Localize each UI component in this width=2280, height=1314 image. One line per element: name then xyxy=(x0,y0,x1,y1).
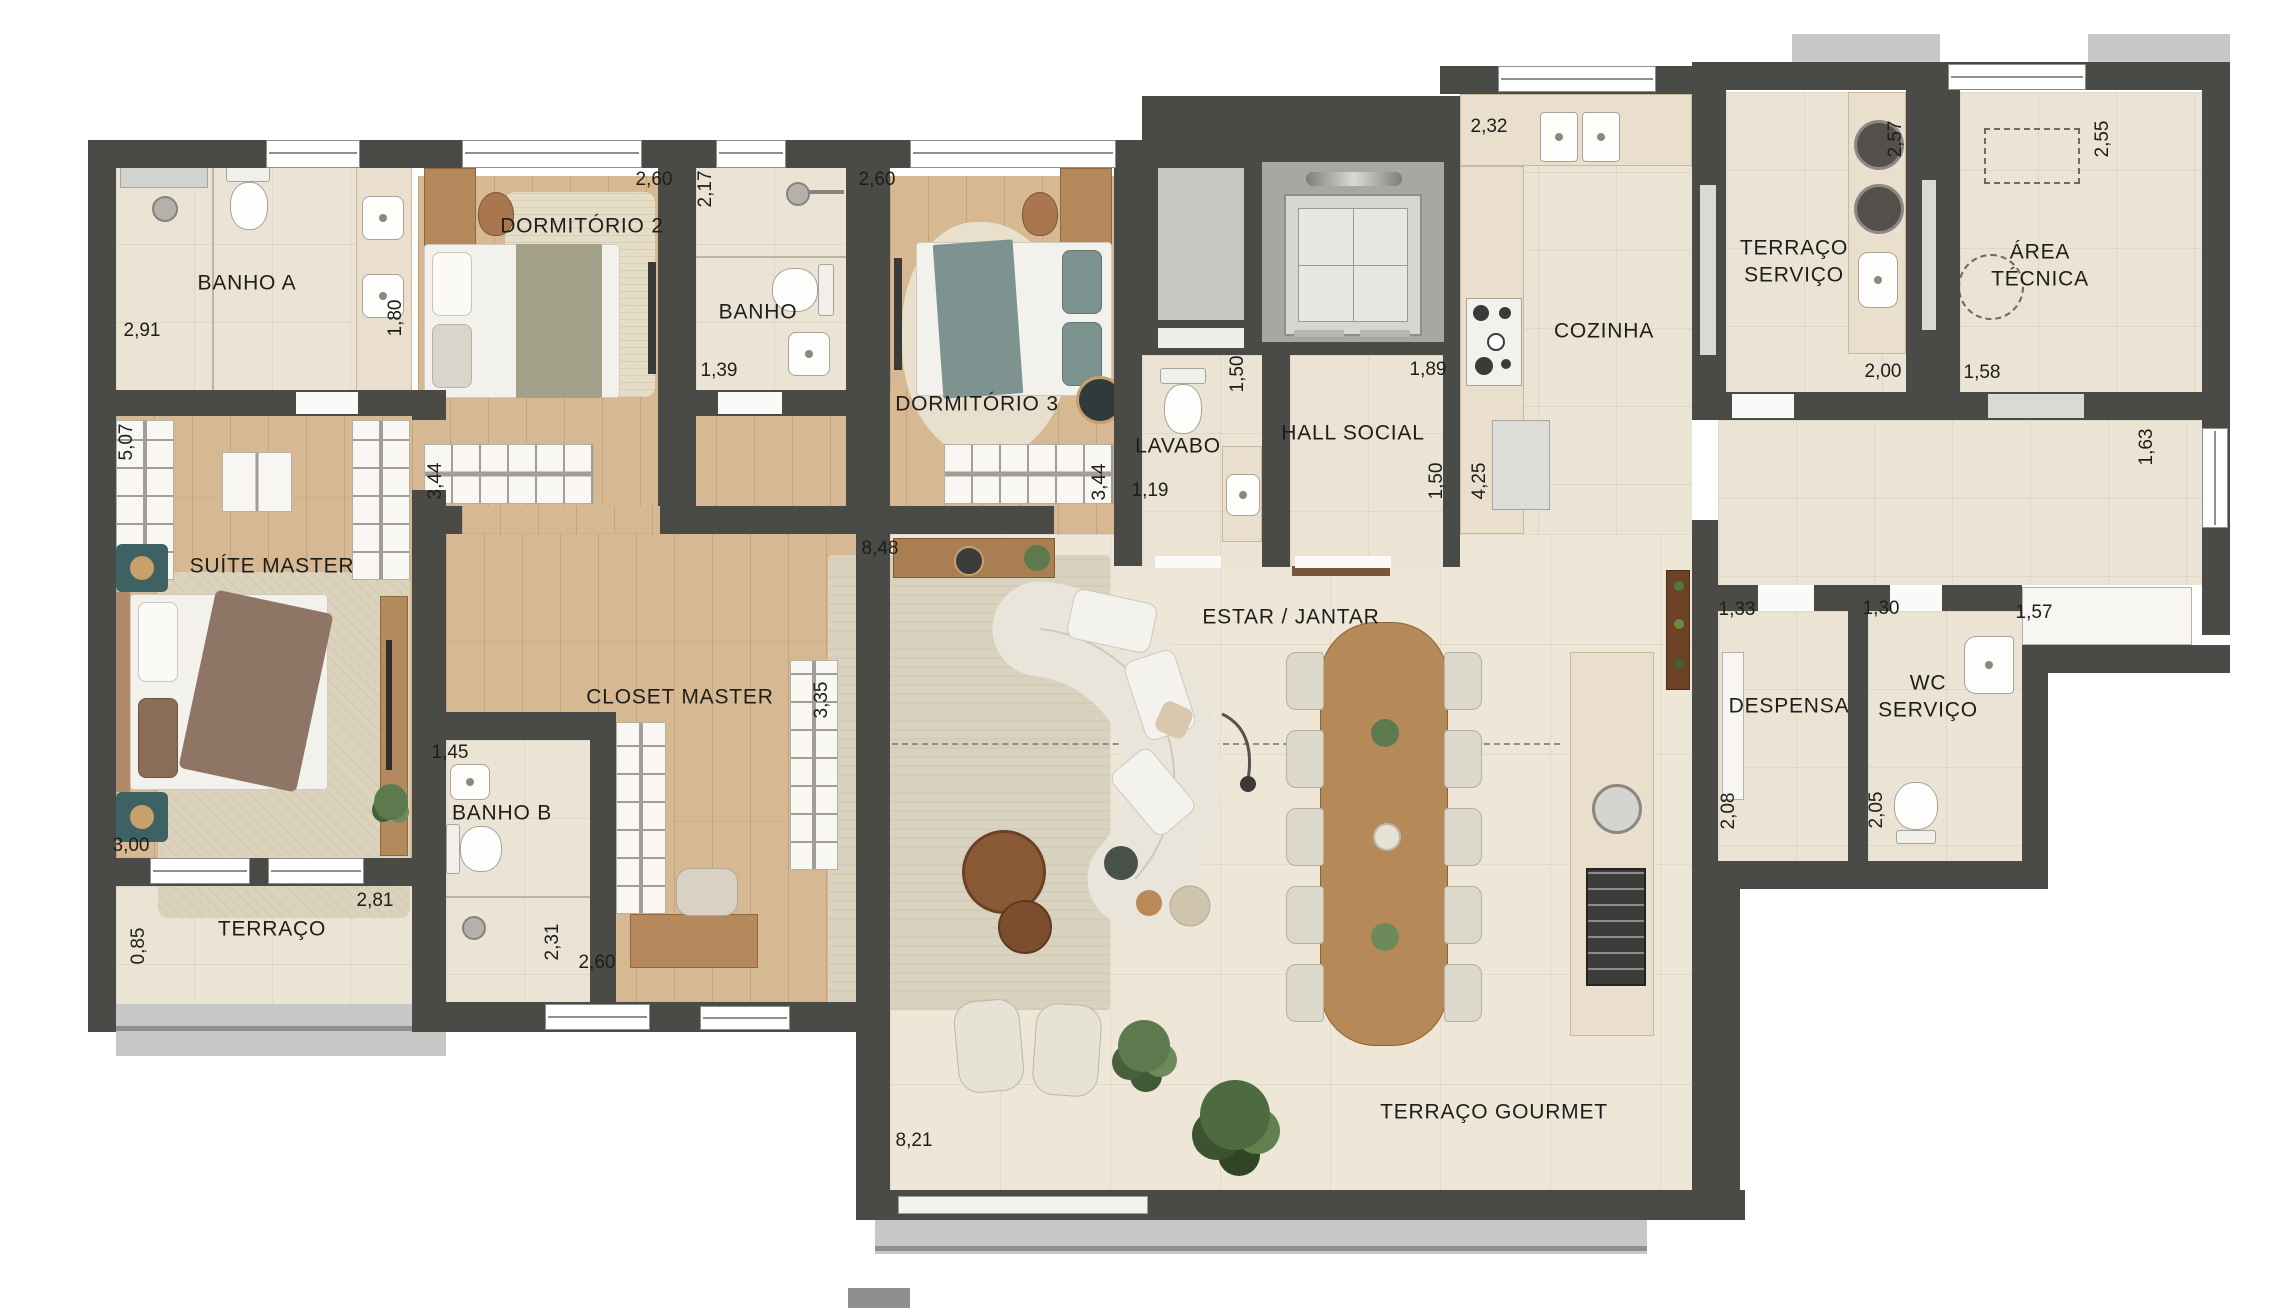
room-label-despensa: DESPENSA xyxy=(1729,692,1850,719)
centerpiece xyxy=(1373,823,1401,851)
burner xyxy=(1475,357,1493,375)
toilet-icon xyxy=(460,826,502,872)
floor-lamp-arm xyxy=(1222,714,1250,780)
window-dorm3 xyxy=(910,140,1116,168)
dorm2-blanket xyxy=(516,244,602,398)
dim-wc-width: 1,30 xyxy=(1863,598,1900,620)
washer-icon xyxy=(1854,184,1904,234)
room-label-wc-servico: WC SERVIÇO xyxy=(1878,670,1978,725)
room-label-lavabo: LAVABO xyxy=(1135,432,1221,459)
shower-head-icon xyxy=(786,182,810,206)
dim-tecnica-width: 1,58 xyxy=(1964,362,2001,384)
grill-icon xyxy=(1586,868,1646,986)
suite-headboard xyxy=(116,592,130,792)
banho-a-door xyxy=(296,392,358,414)
window-banho xyxy=(716,140,786,168)
bottle xyxy=(1674,659,1684,669)
toilet-icon xyxy=(1894,782,1938,830)
dim-shelf: 1,57 xyxy=(2016,602,2053,624)
dim-banho-b-width: 1,45 xyxy=(432,742,469,764)
dim-banho-a-width: 2,91 xyxy=(124,320,161,342)
burner xyxy=(1499,307,1511,319)
wall-hall-cozinha xyxy=(1443,355,1460,567)
dim-terraco-width: 2,81 xyxy=(357,890,394,912)
kitchen-sink-icon xyxy=(1582,112,1620,162)
plant-icon xyxy=(1200,1080,1270,1150)
room-label-banho: BANHO xyxy=(719,298,798,325)
dim-hall-depth: 1,50 xyxy=(1426,463,1448,500)
hall-door-threshold xyxy=(1295,556,1391,568)
dim-lavabo-depth: 1,50 xyxy=(1227,356,1249,393)
wall-dorm3-right xyxy=(1114,142,1142,566)
elevator-sill xyxy=(1360,330,1410,337)
dorm3-pillow xyxy=(1062,250,1102,314)
dim-suite-wardrobe: 5,07 xyxy=(116,424,138,461)
toilet-icon xyxy=(1896,830,1936,844)
window-cozinha xyxy=(1498,66,1656,92)
sink-icon xyxy=(450,764,490,800)
dining-chair xyxy=(1286,652,1324,710)
dim-banho-a-depth: 1,80 xyxy=(385,300,407,337)
toilet-icon xyxy=(1164,384,1202,434)
wall-suite-divider xyxy=(412,490,446,858)
dim-dorm2-wardrobe: 3,44 xyxy=(425,463,447,500)
side-table xyxy=(1136,890,1162,916)
despensa-door xyxy=(1758,587,1814,609)
plant-icon xyxy=(374,784,408,820)
pouf xyxy=(1170,886,1210,926)
dining-chair xyxy=(1444,808,1482,866)
elevator-shaft-shelf xyxy=(1158,328,1244,348)
dining-table xyxy=(1320,622,1448,1046)
dim-banho-width: 1,39 xyxy=(701,360,738,382)
dim-estar-width: 8,48 xyxy=(862,538,899,560)
closet-chair xyxy=(676,868,738,916)
dim-servico-width: 2,00 xyxy=(1865,361,1902,383)
bottle xyxy=(1674,581,1684,591)
dining-chair xyxy=(1444,652,1482,710)
wall-servico-top xyxy=(1726,62,1906,90)
suite-tv xyxy=(386,640,392,770)
toilet-icon xyxy=(1160,368,1206,384)
armchair xyxy=(952,997,1026,1094)
window-suite-2 xyxy=(268,858,364,884)
window-closet-bottom xyxy=(700,1006,790,1030)
decor xyxy=(130,556,154,580)
dining-chair xyxy=(1286,964,1324,1022)
window-banho-a xyxy=(266,140,360,168)
knob xyxy=(1487,333,1505,351)
door-closet-bottom xyxy=(545,1004,650,1030)
dim-banho-b-depth: 2,31 xyxy=(542,924,564,961)
bottle xyxy=(1674,619,1684,629)
wall-gourmet-left xyxy=(856,1012,890,1190)
stove-icon xyxy=(1466,298,1522,386)
dim-cozinha-length: 4,25 xyxy=(1469,463,1491,500)
wall-closet-bottom xyxy=(412,1002,890,1032)
room-label-banho-a: BANHO A xyxy=(198,269,297,296)
dining-chair xyxy=(1286,808,1324,866)
wall-suite-divider xyxy=(412,390,446,420)
dim-hall-width: 1,89 xyxy=(1410,359,1447,381)
wall-bedrooms-bottom xyxy=(660,506,1054,534)
dim-despensa-width: 1,33 xyxy=(1719,599,1756,621)
room-label-terraco: TERRAÇO xyxy=(218,915,326,942)
suite-nightstand xyxy=(116,544,168,592)
room-label-area-tecnica: ÁREA TÉCNICA xyxy=(1991,239,2089,294)
dim-servico-depth: 2,57 xyxy=(1885,121,1907,158)
wall-banho-dorm3 xyxy=(846,142,890,506)
tecnica-top-slab xyxy=(2088,34,2230,62)
wall-closet-living xyxy=(856,534,890,1012)
room-label-banho-b: BANHO B xyxy=(452,799,552,826)
wall-lavabo-hall xyxy=(1262,355,1290,567)
window-tecnica xyxy=(1948,64,2086,90)
dorm2-wardrobe xyxy=(424,444,594,504)
room-label-suite-master: SUÍTE MASTER xyxy=(190,552,355,579)
lavabo-door xyxy=(1155,556,1221,568)
burner xyxy=(1473,305,1489,321)
bottom-tab xyxy=(848,1288,910,1308)
dorm3-chair xyxy=(1022,192,1058,236)
refrigerator xyxy=(1492,420,1550,510)
dorm2-pillow xyxy=(432,252,472,316)
wall-right-top xyxy=(2202,62,2230,392)
wall-corridor-bottom xyxy=(1942,585,2022,611)
servico-glass-door xyxy=(1700,185,1716,355)
room-label-hall-social: HALL SOCIAL xyxy=(1281,419,1424,446)
toilet-icon xyxy=(230,182,268,230)
room-label-terraco-gourmet: TERRAÇO GOURMET xyxy=(1380,1098,1608,1125)
dorm3-tv xyxy=(894,258,902,370)
coffee-table xyxy=(998,900,1052,954)
banho-b-shower-line xyxy=(446,896,590,898)
dim-terraco-depth: 0,85 xyxy=(128,928,150,965)
wall xyxy=(88,140,266,168)
wall-banho-b-top xyxy=(446,712,590,740)
dorm2-tv xyxy=(648,262,656,374)
banho-door xyxy=(718,392,782,414)
closet-dressing-table xyxy=(630,914,758,968)
kitchen-sink-icon xyxy=(1540,112,1578,162)
dim-corridor-window: 1,63 xyxy=(2136,429,2158,466)
laundry-sink-icon xyxy=(1858,252,1898,308)
floor-plan: BANHO A DORMITÓRIO 2 BANHO DORMITÓRIO 3 … xyxy=(0,0,2280,1314)
window-suite-1 xyxy=(150,858,250,884)
shower-head-icon xyxy=(462,916,486,940)
service-corridor-floor xyxy=(1718,420,2202,585)
dim-closet-wardrobe: 3,35 xyxy=(811,682,833,719)
dim-despensa-depth: 2,08 xyxy=(1718,793,1740,830)
burner xyxy=(1501,359,1511,369)
room-label-estar-jantar: ESTAR / JANTAR xyxy=(1202,603,1379,630)
dining-chair xyxy=(1286,886,1324,944)
wall xyxy=(88,140,116,1032)
room-label-dormitorio-2: DORMITÓRIO 2 xyxy=(500,212,664,239)
tecnica-step xyxy=(1988,394,2084,418)
wall-bar xyxy=(1692,520,1718,861)
gourmet-sliding-door xyxy=(898,1196,1148,1214)
dining-chair xyxy=(1444,730,1482,788)
wall-service-bottom xyxy=(1692,861,2048,889)
sink-icon xyxy=(1226,474,1260,516)
shower-head-icon xyxy=(152,196,178,222)
terraco-slab-line xyxy=(116,1026,446,1031)
wall-gourmet-right xyxy=(1692,889,1740,1190)
dining-chair xyxy=(1444,964,1482,1022)
wall xyxy=(360,140,462,168)
dim-lavabo-width: 1,19 xyxy=(1132,480,1169,502)
elevator-handle xyxy=(1306,172,1402,186)
dim-dorm3-width: 2,60 xyxy=(859,169,896,191)
dim-gourmet-width: 8,21 xyxy=(896,1130,933,1152)
sink-icon xyxy=(788,332,830,376)
toilet-icon xyxy=(226,166,270,182)
wall-suite-bottom xyxy=(88,858,446,886)
elevator-shaft xyxy=(1158,168,1244,320)
elevator-sill xyxy=(1294,330,1344,337)
servico-door xyxy=(1732,394,1794,418)
dim-banho-depth: 2,17 xyxy=(695,171,717,208)
banho-shower-line xyxy=(696,256,846,258)
suite-pillow xyxy=(138,602,178,682)
centerpiece xyxy=(1371,719,1399,747)
dim-dorm2-width: 2,60 xyxy=(636,169,673,191)
wall-dorm2-banho xyxy=(658,142,696,506)
closet-wardrobe-left xyxy=(616,722,666,914)
dim-tecnica-depth: 2,55 xyxy=(2092,121,2114,158)
room-label-closet-master: CLOSET MASTER xyxy=(586,683,773,710)
despensa-shelf xyxy=(1722,652,1744,800)
armchair xyxy=(1031,1002,1103,1098)
side-table xyxy=(1104,846,1138,880)
shower-arm xyxy=(806,190,844,194)
dining-chair xyxy=(1444,886,1482,944)
suite-wardrobe-right xyxy=(352,420,410,580)
plant-icon xyxy=(1118,1020,1170,1072)
gourmet-sink-icon xyxy=(1592,784,1642,834)
dorm3-desk xyxy=(1060,168,1112,246)
suite-pillow xyxy=(138,698,178,778)
window-dorm2 xyxy=(462,140,642,168)
centerpiece xyxy=(1371,923,1399,951)
room-label-terraco-servico: TERRAÇO SERVIÇO xyxy=(1740,235,1848,290)
dim-wc-depth: 2,05 xyxy=(1866,792,1888,829)
closet-passage-floor xyxy=(462,506,660,534)
dorm3-blanket xyxy=(933,239,1024,398)
dim-cozinha-width: 2,32 xyxy=(1471,116,1508,138)
wall-banho-a-bottom xyxy=(88,390,412,416)
floor-lamp-head xyxy=(1240,776,1256,792)
tecnica-glass xyxy=(1922,180,1936,330)
dorm2-pillow xyxy=(432,324,472,388)
wall-under-shelf xyxy=(2022,645,2230,673)
servico-top-slab xyxy=(1792,34,1940,62)
gourmet-slab-line xyxy=(875,1246,1647,1251)
dim-closet-width: 2,60 xyxy=(579,952,616,974)
bar-cabinet xyxy=(1666,570,1690,690)
toilet-icon xyxy=(446,824,460,874)
dorm2-desk xyxy=(424,168,476,246)
suite-drawer-island xyxy=(222,452,292,512)
toilet-icon xyxy=(818,264,834,316)
sink-icon xyxy=(362,196,404,240)
room-label-cozinha: COZINHA xyxy=(1554,317,1654,344)
room-label-dormitorio-3: DORMITÓRIO 3 xyxy=(895,390,1059,417)
dining-chair xyxy=(1286,730,1324,788)
window-corridor-right xyxy=(2202,428,2228,528)
dim-suite-width: 3,00 xyxy=(113,835,150,857)
wall-wc-right xyxy=(2022,673,2048,861)
wall-despensa-wc xyxy=(1848,611,1868,861)
dim-dorm3-wardrobe: 3,44 xyxy=(1089,464,1111,501)
decor xyxy=(130,805,154,829)
tecnica-equipment-dashed xyxy=(1984,128,2080,184)
elevator-cab xyxy=(1298,208,1408,322)
